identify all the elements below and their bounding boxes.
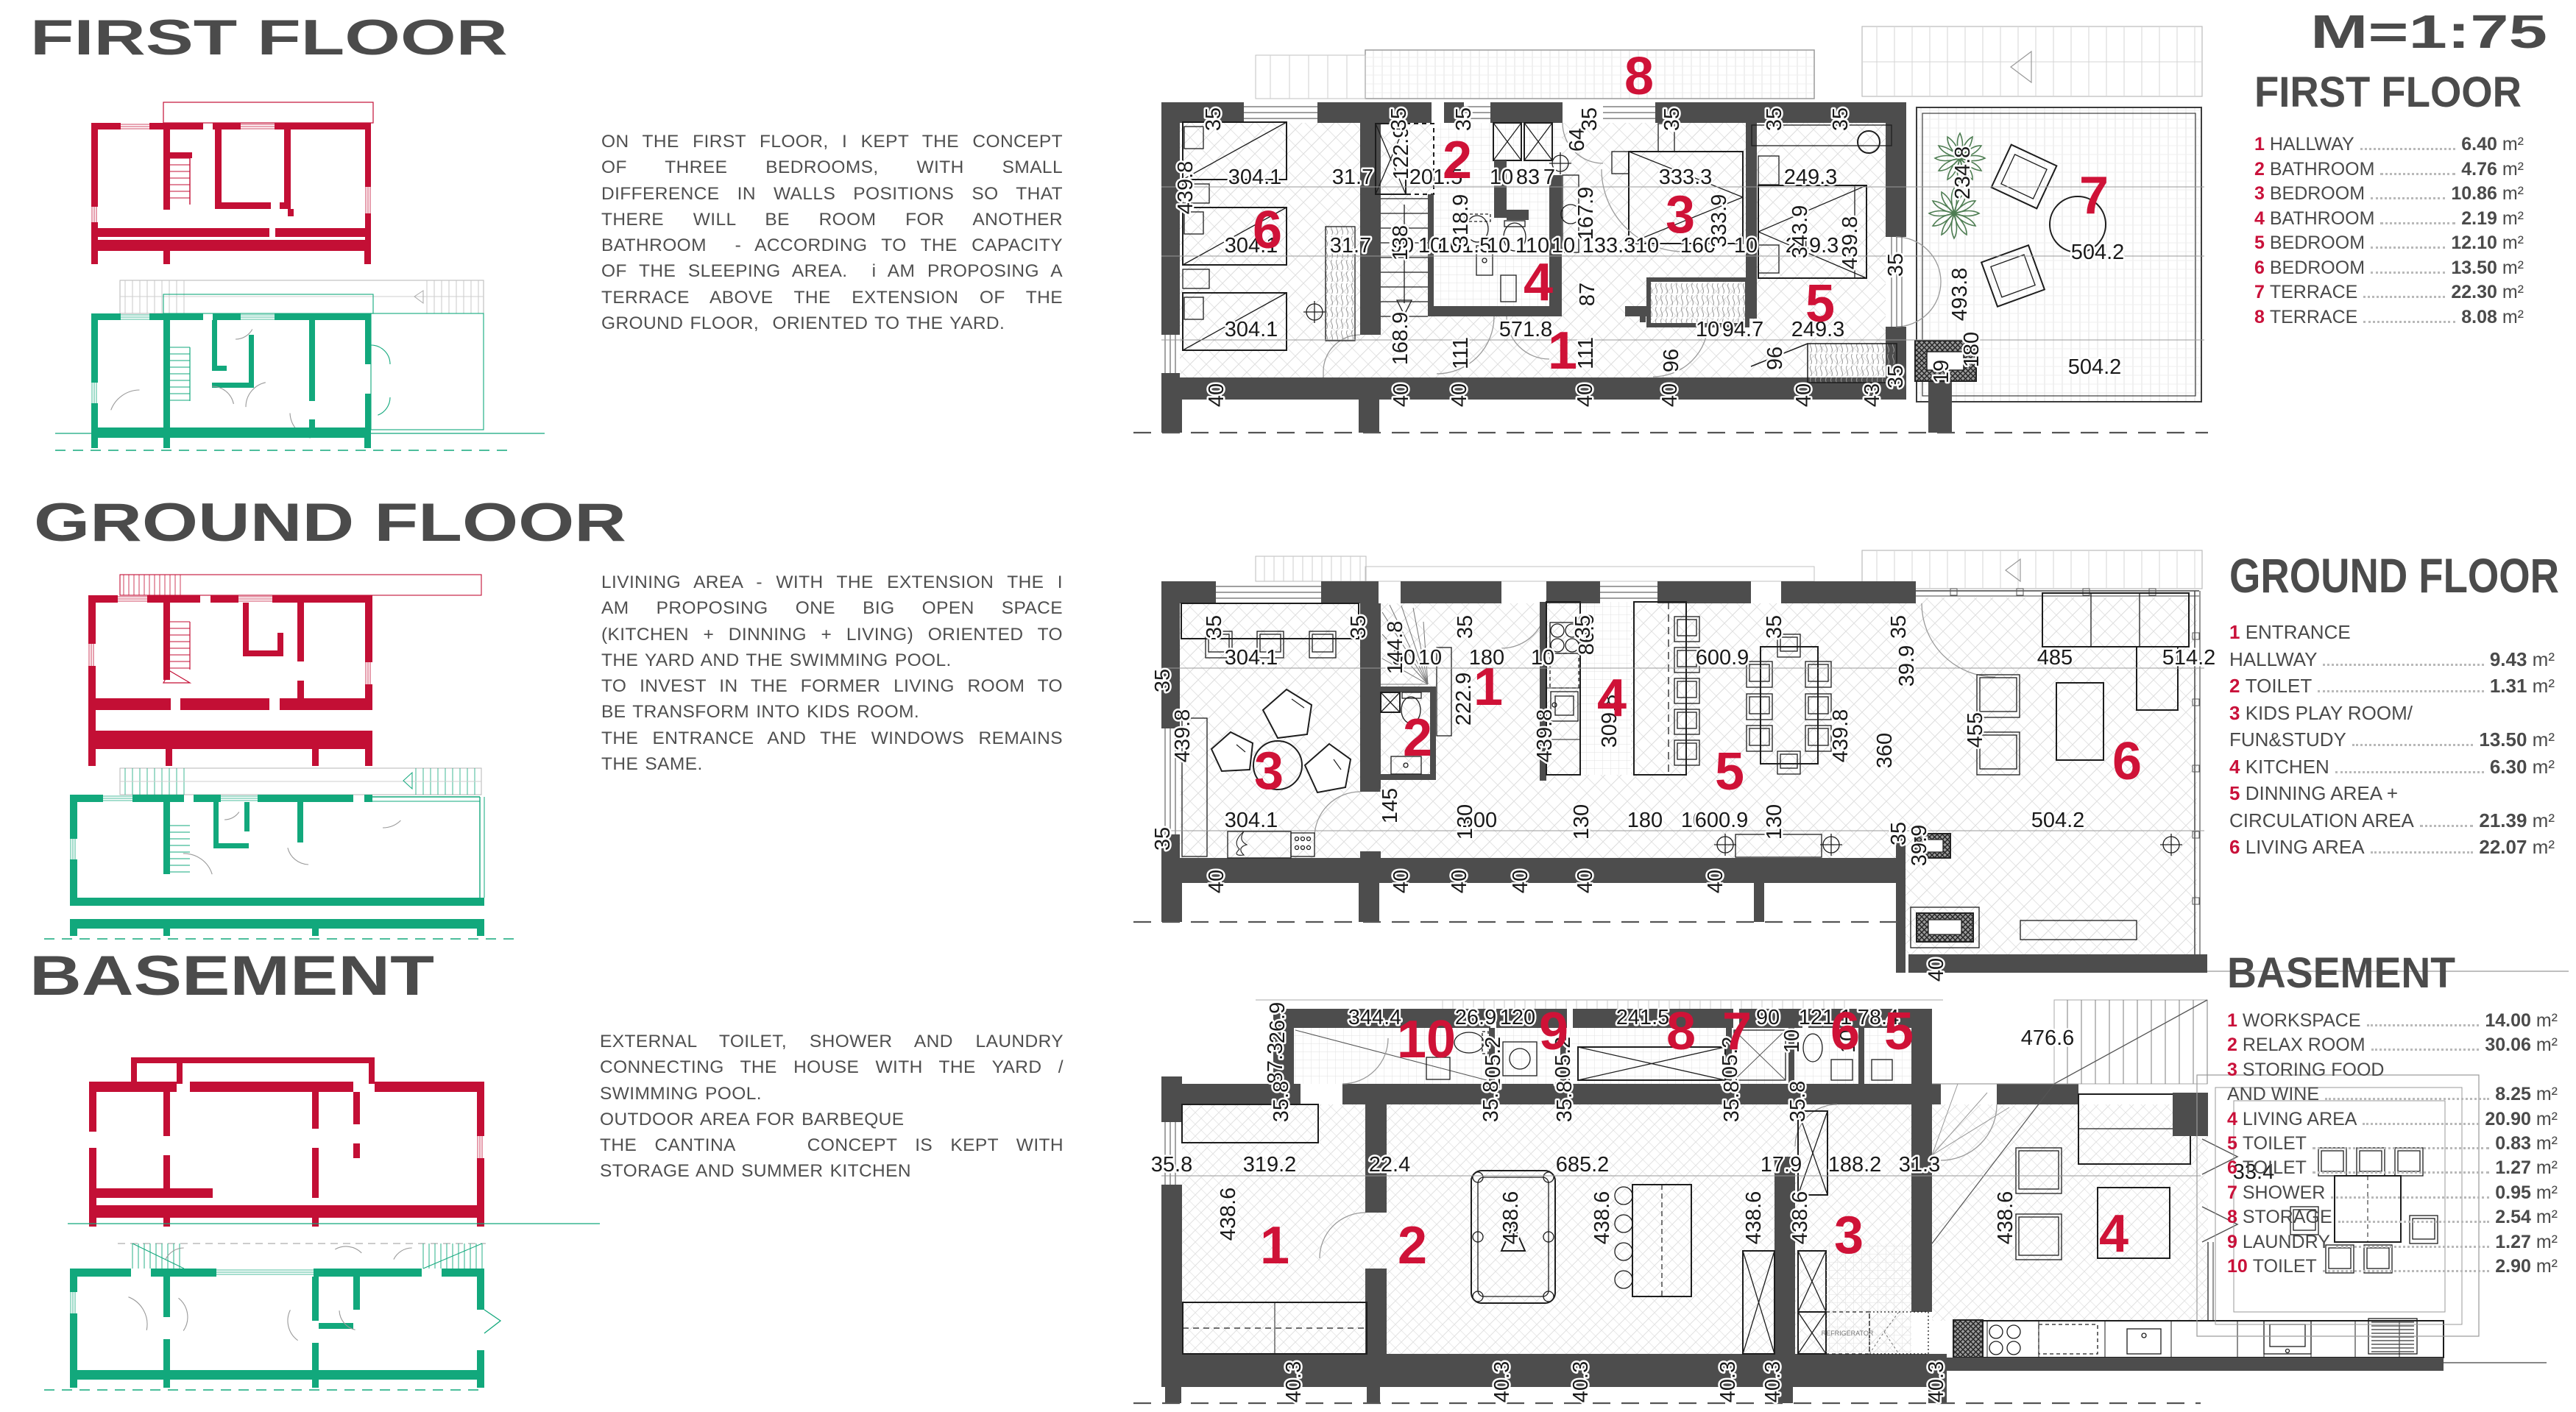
svg-text:40: 40	[1390, 383, 1413, 407]
svg-text:REFRIGERATOR: REFRIGERATOR	[1822, 1330, 1874, 1337]
svg-text:439.8: 439.8	[1174, 161, 1197, 215]
svg-text:493.8: 493.8	[1948, 268, 1972, 322]
svg-text:360: 360	[1873, 733, 1897, 768]
svg-text:10: 10	[1696, 318, 1719, 341]
svg-text:35.8: 35.8	[1786, 1081, 1810, 1122]
svg-text:GROUND FLOOR: GROUND FLOOR	[2229, 548, 2559, 603]
svg-text:22.4: 22.4	[1369, 1153, 1410, 1177]
svg-text:40: 40	[1205, 383, 1228, 407]
svg-text:439.8: 439.8	[1171, 709, 1195, 763]
svg-text:40.3: 40.3	[1490, 1361, 1514, 1402]
svg-text:1: 1	[1473, 658, 1503, 717]
svg-text:35: 35	[1387, 107, 1411, 131]
svg-text:39.9: 39.9	[1908, 825, 1931, 866]
svg-text:144.8: 144.8	[1384, 621, 1407, 675]
svg-text:26.9: 26.9	[1266, 1002, 1289, 1043]
svg-text:35: 35	[1571, 615, 1595, 639]
svg-text:35: 35	[1887, 822, 1911, 845]
svg-text:35.8: 35.8	[1270, 1081, 1293, 1122]
svg-text:31.3: 31.3	[1899, 1153, 1940, 1177]
svg-text:40: 40	[1509, 870, 1532, 893]
svg-text:455: 455	[1964, 712, 1987, 748]
svg-text:344.4: 344.4	[1348, 1006, 1402, 1029]
svg-text:96: 96	[1763, 347, 1787, 370]
svg-text:7: 7	[1543, 166, 1555, 189]
svg-text:87: 87	[1576, 283, 1599, 306]
svg-text:87.3: 87.3	[1264, 1043, 1287, 1084]
svg-text:43: 43	[1861, 383, 1884, 407]
svg-text:40: 40	[1704, 870, 1727, 893]
svg-text:120: 120	[1500, 1006, 1535, 1029]
svg-text:7: 7	[1722, 1002, 1752, 1061]
svg-text:BASEMENT: BASEMENT	[2227, 949, 2455, 997]
svg-text:35: 35	[1452, 107, 1476, 131]
svg-text:7: 7	[2079, 166, 2109, 225]
svg-text:1: 1	[1548, 322, 1577, 380]
svg-text:FIRST FLOOR: FIRST FLOOR	[2254, 68, 2522, 116]
svg-text:35: 35	[1202, 107, 1225, 131]
svg-text:35: 35	[1829, 107, 1853, 131]
svg-text:5: 5	[1884, 1002, 1914, 1061]
svg-text:31.7: 31.7	[1330, 234, 1371, 258]
svg-text:40: 40	[1574, 870, 1597, 893]
svg-text:234.8: 234.8	[1951, 146, 1975, 200]
svg-text:439.8: 439.8	[1533, 709, 1557, 763]
svg-text:304.1: 304.1	[1225, 318, 1278, 341]
svg-text:35.8: 35.8	[1553, 1081, 1577, 1122]
svg-text:35: 35	[1203, 615, 1226, 639]
svg-text:35: 35	[1884, 365, 1908, 389]
svg-text:438.6: 438.6	[1499, 1191, 1523, 1245]
svg-text:40: 40	[1925, 958, 1948, 982]
svg-text:6: 6	[2112, 732, 2142, 791]
svg-text:222.9: 222.9	[1452, 673, 1476, 726]
svg-text:40.3: 40.3	[1716, 1361, 1740, 1402]
svg-text:438.6: 438.6	[1994, 1191, 2017, 1245]
svg-text:40.3: 40.3	[1569, 1361, 1593, 1402]
svg-text:10: 10	[1487, 234, 1510, 258]
svg-text:35: 35	[1660, 107, 1684, 131]
svg-text:96: 96	[1660, 349, 1683, 372]
svg-text:504.2: 504.2	[2071, 241, 2125, 264]
svg-text:39.9: 39.9	[1895, 645, 1919, 687]
svg-text:439.8: 439.8	[1829, 709, 1853, 763]
svg-text:167.9: 167.9	[1574, 187, 1598, 241]
svg-text:485: 485	[2037, 646, 2073, 670]
svg-text:1: 1	[1260, 1216, 1289, 1275]
svg-text:5: 5	[1715, 742, 1744, 801]
svg-text:35: 35	[1887, 615, 1911, 639]
svg-text:40.3: 40.3	[1282, 1361, 1306, 1402]
svg-text:438.6: 438.6	[1742, 1191, 1766, 1245]
svg-text:40: 40	[1448, 383, 1471, 407]
svg-text:4: 4	[1524, 253, 1553, 312]
svg-text:35.8: 35.8	[1151, 1153, 1192, 1177]
svg-text:35: 35	[1454, 615, 1477, 639]
svg-text:40: 40	[1792, 383, 1816, 407]
svg-text:600.9: 600.9	[1696, 646, 1749, 670]
svg-text:35: 35	[1884, 253, 1908, 277]
svg-text:8: 8	[1624, 47, 1654, 106]
svg-text:83: 83	[1516, 166, 1540, 189]
svg-text:10: 10	[1551, 234, 1575, 258]
svg-text:2: 2	[1403, 709, 1432, 767]
svg-text:130: 130	[1570, 804, 1593, 840]
svg-text:40: 40	[1205, 870, 1228, 893]
svg-text:439.8: 439.8	[1839, 216, 1862, 270]
svg-text:5: 5	[1805, 274, 1835, 333]
svg-text:130: 130	[1763, 804, 1786, 840]
svg-text:40: 40	[1448, 870, 1471, 893]
svg-text:10: 10	[1397, 1010, 1456, 1069]
svg-text:10: 10	[1490, 166, 1513, 189]
svg-text:318.9: 318.9	[1449, 194, 1473, 248]
svg-text:168.9: 168.9	[1389, 312, 1412, 366]
svg-text:40.3: 40.3	[1761, 1361, 1785, 1402]
svg-text:304.1: 304.1	[1228, 166, 1282, 189]
svg-text:514.2: 514.2	[2162, 646, 2216, 670]
svg-text:6: 6	[1830, 1002, 1860, 1061]
svg-text:10: 10	[1418, 646, 1442, 670]
svg-text:26.9: 26.9	[1455, 1006, 1496, 1029]
svg-text:343.9: 343.9	[1788, 205, 1812, 259]
svg-text:40: 40	[1574, 383, 1597, 407]
svg-text:35: 35	[1578, 107, 1602, 131]
svg-text:35: 35	[1763, 107, 1786, 131]
svg-text:111: 111	[1449, 337, 1473, 369]
svg-text:180: 180	[1960, 332, 1984, 367]
svg-text:35: 35	[1151, 669, 1175, 692]
svg-text:4: 4	[1597, 669, 1627, 728]
svg-text:188.2: 188.2	[1828, 1153, 1882, 1177]
svg-text:40: 40	[1658, 383, 1682, 407]
svg-text:333.9: 333.9	[1708, 194, 1731, 248]
svg-text:31.7: 31.7	[1332, 166, 1373, 189]
svg-text:2: 2	[1398, 1216, 1427, 1275]
svg-text:504.2: 504.2	[2031, 809, 2085, 832]
svg-text:35: 35	[1763, 615, 1786, 639]
svg-text:122.9: 122.9	[1390, 127, 1413, 180]
svg-text:35: 35	[1347, 615, 1370, 639]
svg-text:111: 111	[1574, 337, 1598, 369]
svg-text:8: 8	[1666, 1002, 1696, 1061]
svg-text:10: 10	[1734, 234, 1758, 258]
svg-text:BASEMENT: BASEMENT	[29, 945, 434, 1007]
svg-text:10: 10	[1531, 646, 1554, 670]
svg-text:94.7: 94.7	[1722, 318, 1763, 341]
svg-text:249.3: 249.3	[1784, 166, 1838, 189]
svg-text:6: 6	[1253, 201, 1282, 260]
svg-text:9: 9	[1539, 1002, 1568, 1061]
svg-text:90: 90	[1756, 1006, 1780, 1029]
svg-text:304.1: 304.1	[1225, 646, 1278, 670]
svg-text:4: 4	[2099, 1205, 2129, 1263]
svg-text:35: 35	[1151, 827, 1175, 851]
svg-text:3: 3	[1254, 742, 1284, 801]
svg-text:2: 2	[1443, 131, 1472, 190]
svg-text:571.8: 571.8	[1499, 318, 1553, 341]
svg-text:35.8: 35.8	[1479, 1081, 1503, 1122]
svg-text:40: 40	[1390, 870, 1413, 893]
svg-text:17.9: 17.9	[1761, 1153, 1802, 1177]
svg-text:3: 3	[1666, 185, 1695, 244]
svg-text:438.6: 438.6	[1788, 1191, 1812, 1245]
svg-text:180: 180	[1627, 809, 1663, 832]
svg-text:130: 130	[1454, 804, 1477, 840]
svg-text:GROUND FLOOR: GROUND FLOOR	[34, 493, 626, 553]
svg-text:685.2: 685.2	[1556, 1153, 1610, 1177]
svg-text:3: 3	[1834, 1206, 1864, 1265]
svg-text:476.6: 476.6	[2021, 1026, 2075, 1050]
svg-text:M=1:75: M=1:75	[2310, 5, 2547, 58]
svg-text:145: 145	[1379, 788, 1402, 823]
svg-text:35.8: 35.8	[1720, 1081, 1744, 1122]
svg-text:304.1: 304.1	[1225, 809, 1278, 832]
svg-text:438.6: 438.6	[1217, 1188, 1240, 1241]
svg-text:19: 19	[1930, 360, 1953, 383]
svg-text:10: 10	[1780, 1029, 1804, 1053]
svg-text:40.3: 40.3	[1925, 1361, 1948, 1402]
svg-text:241.5: 241.5	[1616, 1006, 1670, 1029]
svg-text:10: 10	[1635, 234, 1659, 258]
svg-text:138: 138	[1389, 225, 1412, 260]
svg-text:319.2: 319.2	[1243, 1153, 1297, 1177]
svg-text:600.9: 600.9	[1695, 809, 1749, 832]
svg-text:438.6: 438.6	[1590, 1191, 1614, 1245]
svg-text:504.2: 504.2	[2068, 355, 2122, 379]
